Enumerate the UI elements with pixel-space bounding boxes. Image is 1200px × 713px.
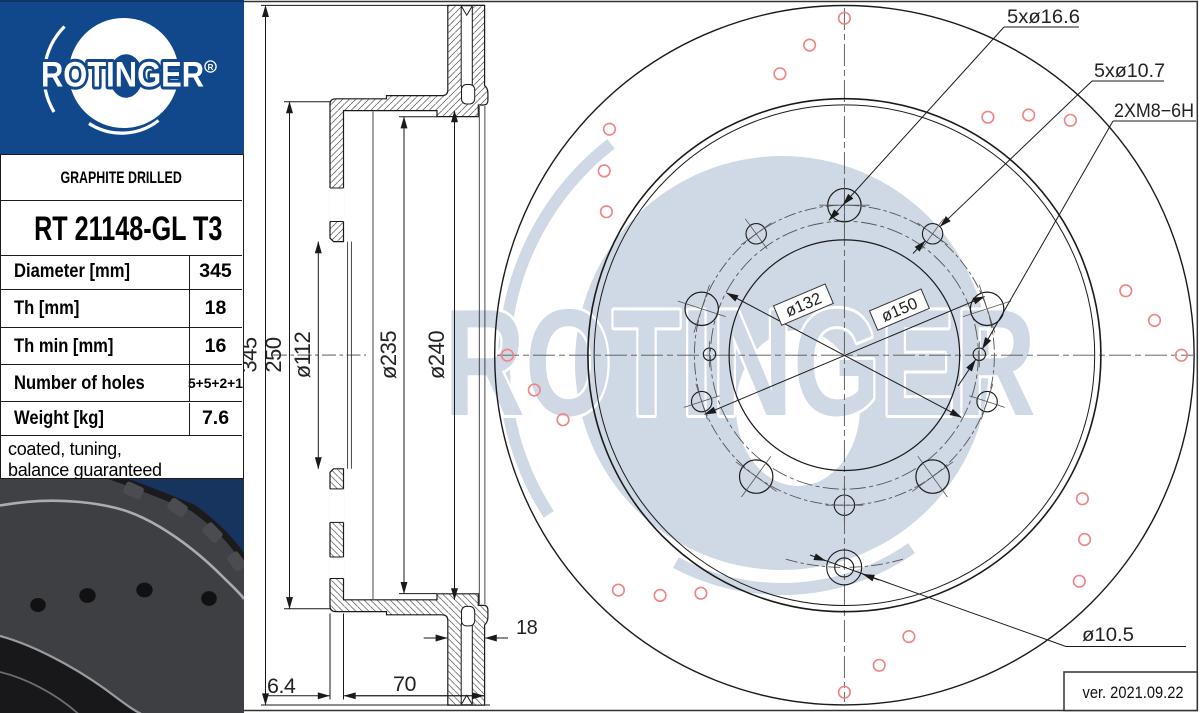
svg-text:ø112: ø112 [290, 331, 315, 378]
svg-text:6.4: 6.4 [267, 674, 296, 698]
svg-text:5xø16.6: 5xø16.6 [1007, 7, 1080, 28]
svg-text:ROTINGER: ROTINGER [41, 55, 204, 95]
svg-text:70: 70 [393, 672, 416, 696]
svg-text:18: 18 [516, 617, 538, 639]
svg-text:ver. 2021.09.22: ver. 2021.09.22 [1083, 684, 1184, 702]
svg-text:5xø10.7: 5xø10.7 [1094, 61, 1165, 82]
svg-text:R: R [208, 63, 214, 72]
svg-text:ø235: ø235 [376, 331, 401, 379]
svg-text:ø10.5: ø10.5 [1082, 625, 1134, 646]
svg-text:345: 345 [244, 337, 262, 372]
svg-text:2XM8−6H: 2XM8−6H [1114, 101, 1194, 122]
svg-text:250: 250 [261, 337, 286, 372]
svg-text:ø240: ø240 [424, 331, 449, 379]
